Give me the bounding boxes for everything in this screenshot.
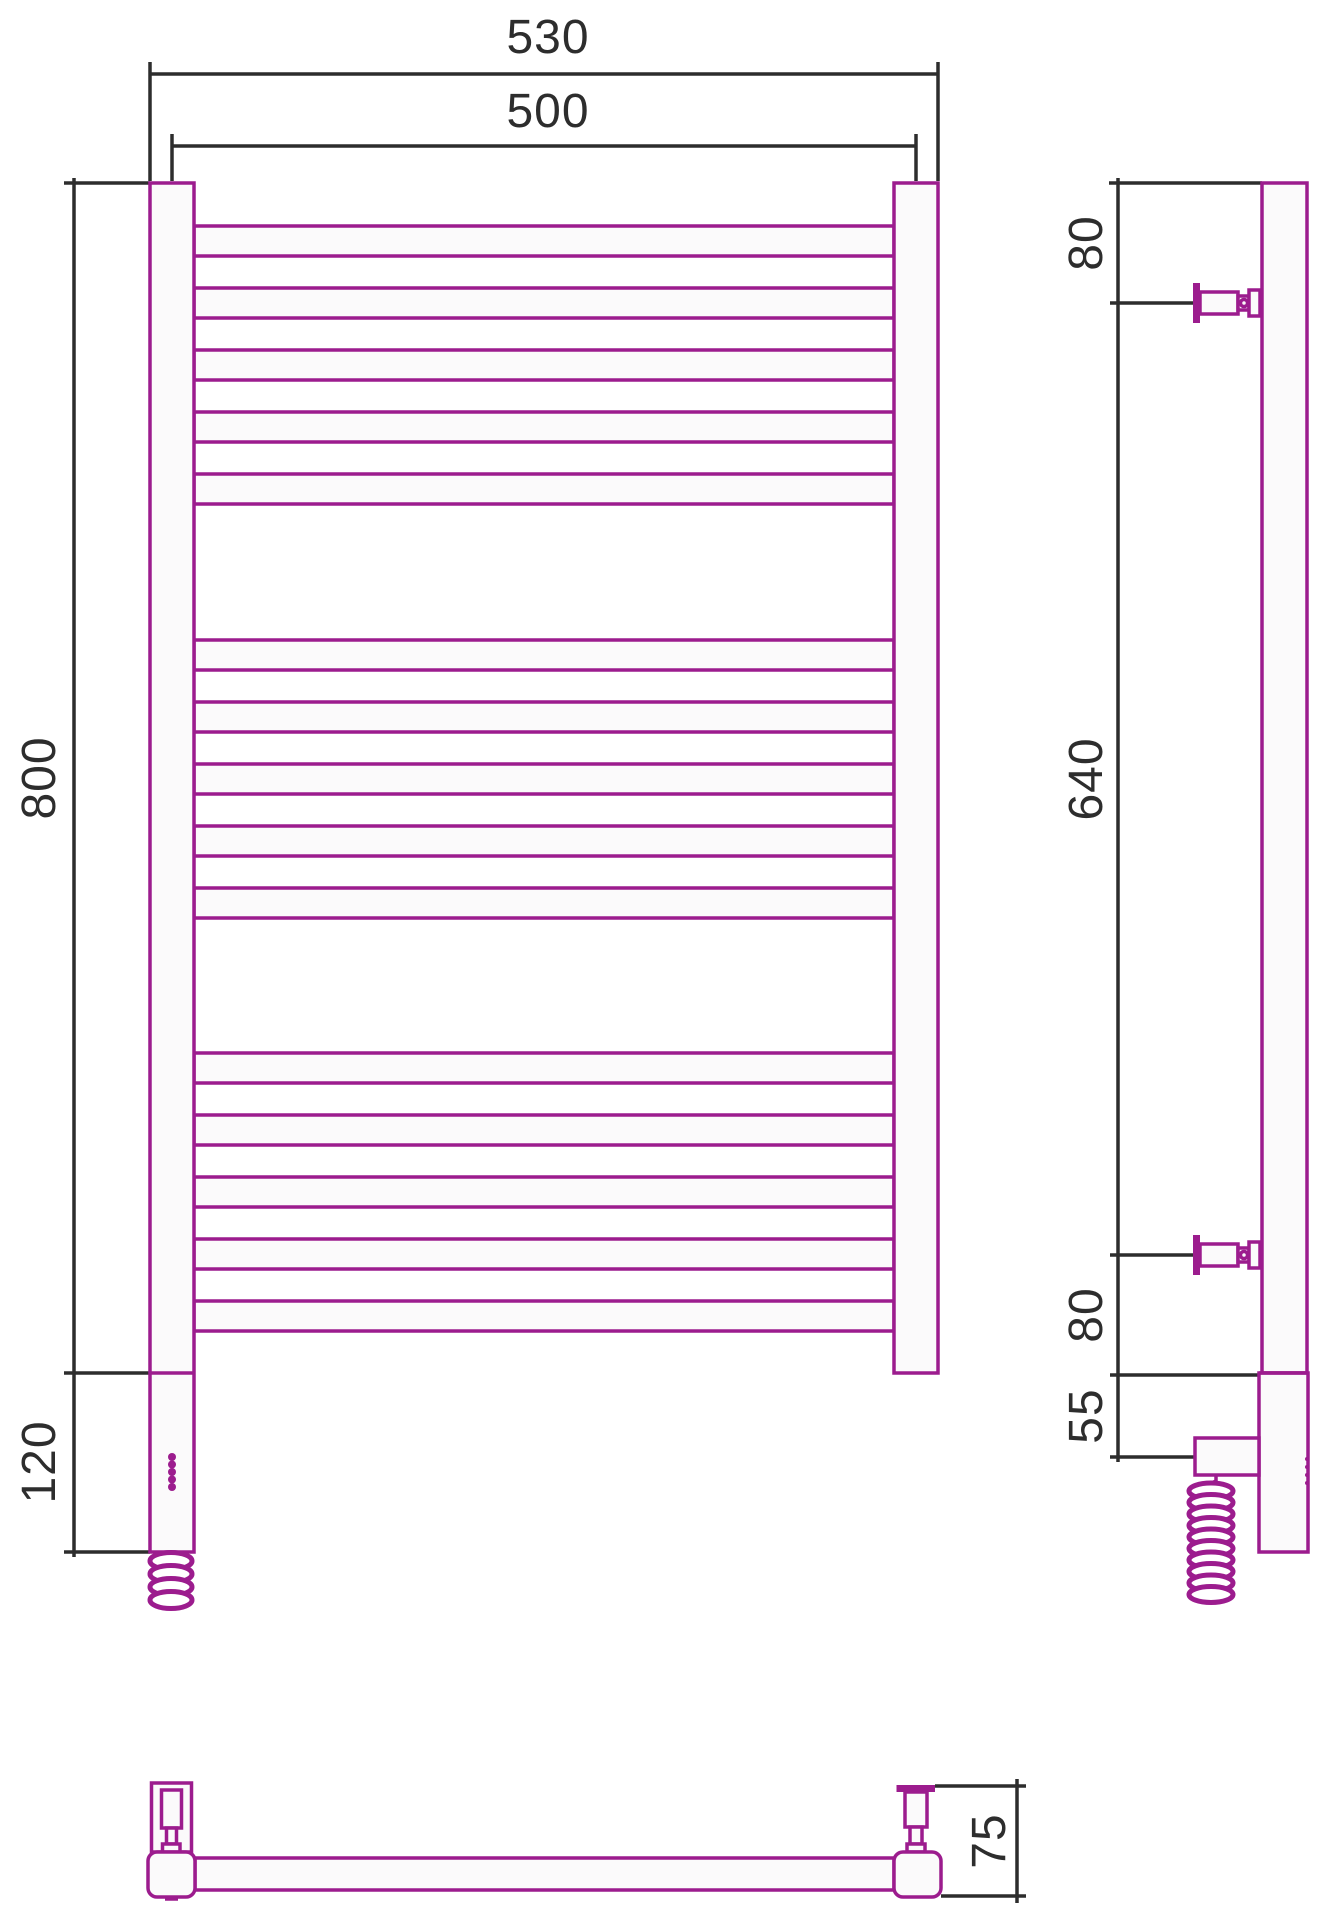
dim-body-height-label: 800	[13, 736, 66, 819]
power-cable-coil-side	[1189, 1483, 1233, 1603]
rung	[194, 640, 894, 670]
front-view: 530 500 800 120	[13, 11, 938, 1609]
rung	[194, 226, 894, 256]
dim-depth: 75	[935, 1779, 1026, 1903]
technical-drawing: 530 500 800 120	[0, 0, 1329, 1920]
wall-bracket-top	[1193, 283, 1260, 323]
dim-rail-width: 500	[172, 85, 916, 181]
wall-bracket-bottom	[1193, 1235, 1260, 1275]
left-post	[150, 183, 194, 1552]
rung	[194, 702, 894, 732]
plan-right-bracket	[894, 1785, 941, 1897]
rung	[194, 764, 894, 794]
dim-heater-offset-label: 55	[1060, 1388, 1113, 1443]
side-dimension-lines: 80 640 80 55	[1060, 178, 1262, 1462]
rung	[194, 474, 894, 504]
heating-element-side	[1195, 1438, 1259, 1475]
led-indicator	[168, 1453, 176, 1491]
dim-depth-label: 75	[963, 1813, 1016, 1868]
rung	[194, 350, 894, 380]
rung	[194, 888, 894, 918]
side-profile	[1262, 183, 1307, 1373]
right-post	[894, 183, 938, 1373]
rung	[194, 288, 894, 318]
rung-group-middle	[194, 640, 894, 918]
rung	[194, 1177, 894, 1207]
dim-body-height: 800 120	[13, 178, 150, 1557]
dim-bracket-span-label: 640	[1060, 737, 1113, 820]
plan-view: 75	[148, 1779, 1026, 1903]
rung-group-bottom	[194, 1053, 894, 1331]
dim-top-offset-label: 80	[1060, 215, 1113, 270]
dim-rail-width-label: 500	[506, 85, 589, 138]
rung	[194, 1053, 894, 1083]
side-profile-heater	[1259, 1373, 1308, 1552]
rung-group-top	[194, 226, 894, 504]
dim-heater-height-label: 120	[13, 1420, 66, 1503]
rung	[194, 826, 894, 856]
rung	[194, 1239, 894, 1269]
plan-rail-tube	[195, 1858, 894, 1890]
dim-overall-width-label: 530	[506, 11, 589, 64]
rung	[194, 1301, 894, 1331]
power-cable-coil-front	[150, 1553, 192, 1609]
rung	[194, 1115, 894, 1145]
rung	[194, 412, 894, 442]
dim-bottom-offset-label: 80	[1060, 1287, 1113, 1342]
side-view: 80 640 80 55	[1060, 178, 1309, 1603]
plan-left-bracket	[148, 1783, 195, 1899]
